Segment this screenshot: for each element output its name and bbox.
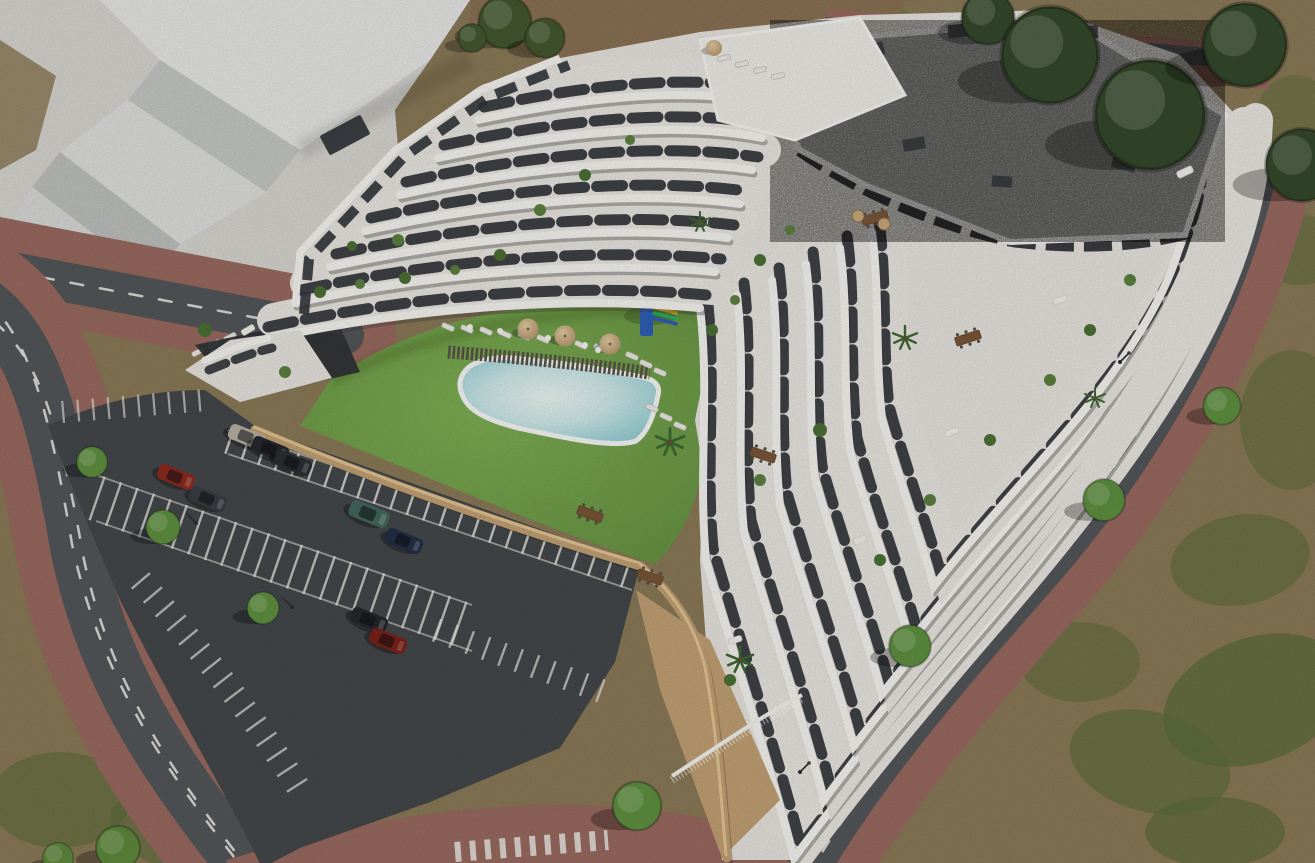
architectural-render bbox=[0, 0, 1315, 863]
render-grain-overlay bbox=[0, 0, 1315, 863]
render-scene bbox=[0, 0, 1315, 863]
